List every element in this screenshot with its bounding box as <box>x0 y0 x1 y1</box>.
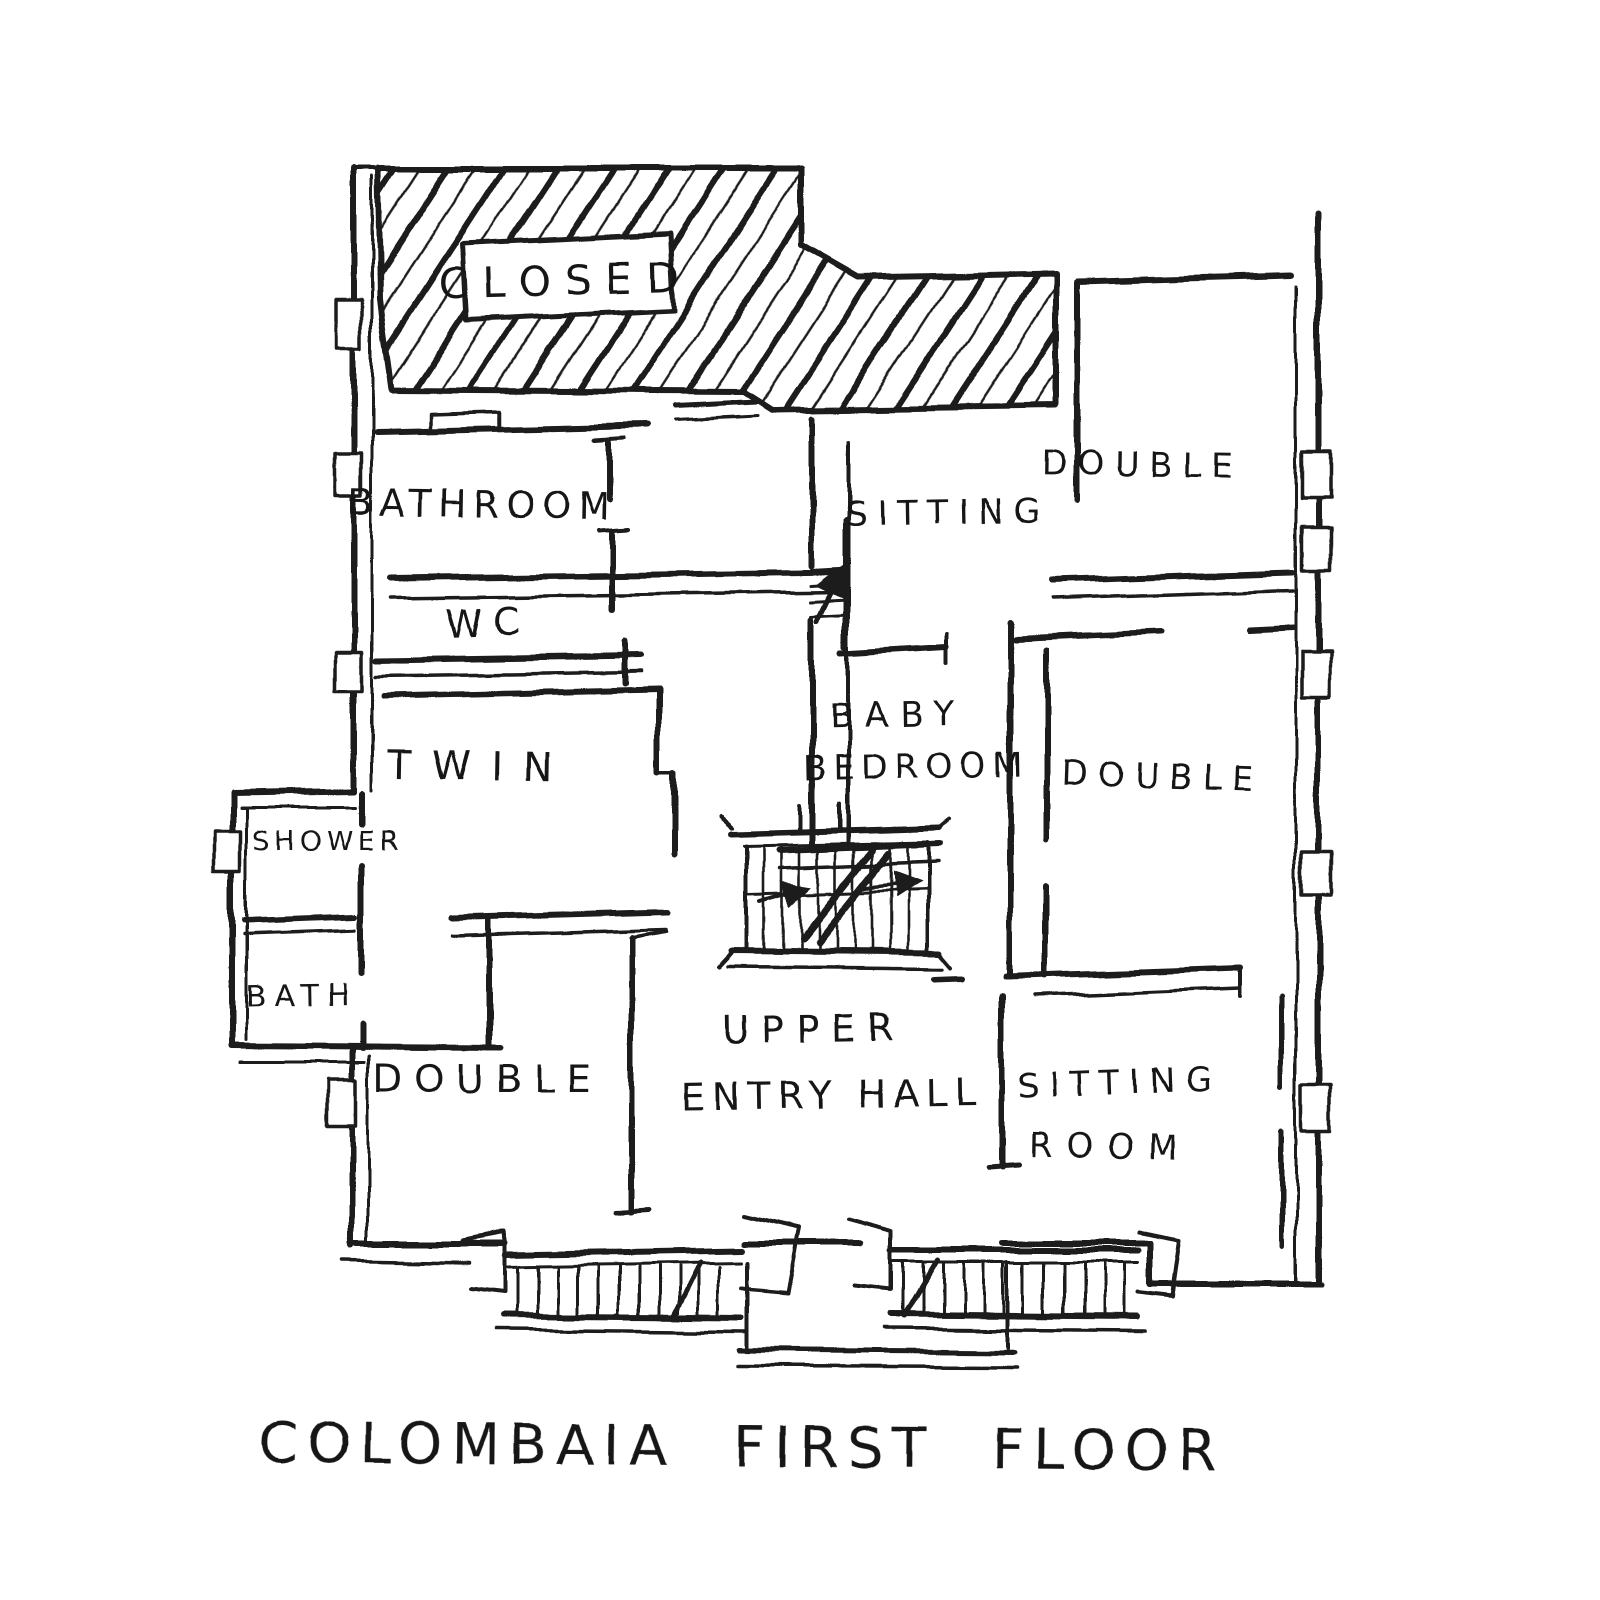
room-label-double-top-right: DOUBLE <box>1041 443 1243 487</box>
room-label-sitting-room-line2: ROOM <box>1029 1126 1192 1169</box>
room-label-double-left: DOUBLE <box>373 1057 603 1101</box>
room-label-baby-line1: BABY <box>829 694 967 736</box>
window-markers <box>214 300 1330 1131</box>
drawing-title: COLOMBAIA FIRST FLOOR <box>258 1411 1225 1484</box>
room-label-wc: WC <box>445 600 531 647</box>
exterior-staircase-right <box>848 1218 1180 1330</box>
room-label-sitting-top: SITTING <box>845 491 1050 535</box>
small-staircase <box>812 568 848 622</box>
room-label-baby-line2: BEDROOM <box>802 745 1029 789</box>
room-label-twin: TWIN <box>386 742 573 791</box>
floorplan-svg: CLOSED BATHROOM WC TWIN SHOWER BATH DOUB… <box>0 0 1600 1600</box>
window-marker <box>328 1080 356 1124</box>
window-marker <box>1302 652 1330 698</box>
window-marker <box>1302 528 1330 570</box>
window-marker <box>1302 452 1330 498</box>
room-label-bath: BATH <box>246 978 358 1015</box>
room-label-hall-line2: ENTRY HALL <box>680 1070 983 1119</box>
window-marker <box>336 650 362 690</box>
sketch-canvas: CLOSED BATHROOM WC TWIN SHOWER BATH DOUB… <box>0 0 1600 1600</box>
room-label-bathroom: BATHROOM <box>347 481 618 529</box>
window-marker <box>1302 1085 1330 1131</box>
room-label-shower: SHOWER <box>252 826 403 857</box>
room-label-sitting-room-line1: SITTING <box>1017 1059 1223 1106</box>
window-marker <box>214 830 240 872</box>
main-staircase <box>720 818 952 968</box>
room-label-hall-line1: UPPER <box>721 1005 906 1052</box>
window-marker <box>336 300 362 348</box>
window-marker <box>1302 852 1330 896</box>
room-label-closed: CLOSED <box>438 253 693 309</box>
room-label-double-right: DOUBLE <box>1061 754 1264 801</box>
